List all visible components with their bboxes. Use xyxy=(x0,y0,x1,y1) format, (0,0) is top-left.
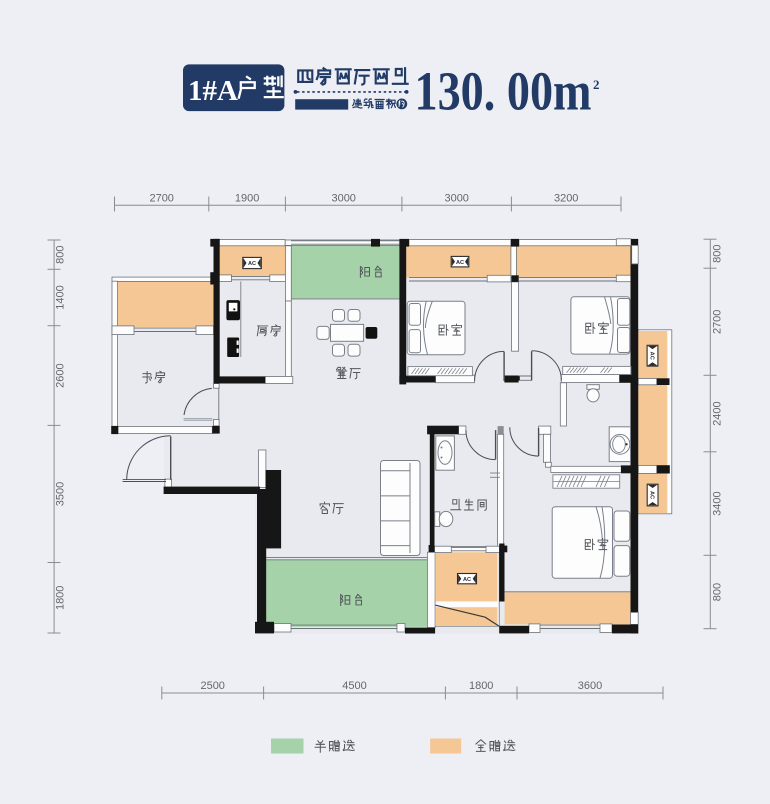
svg-text:1#A: 1#A xyxy=(188,75,238,107)
svg-text:AC: AC xyxy=(648,491,654,499)
svg-text:1900: 1900 xyxy=(235,193,259,205)
svg-text:1800: 1800 xyxy=(469,680,493,692)
svg-text:800: 800 xyxy=(712,583,724,601)
svg-text:1800: 1800 xyxy=(55,586,67,610)
svg-text:130. 00m: 130. 00m xyxy=(415,61,592,122)
svg-text:3200: 3200 xyxy=(554,193,578,205)
svg-text:AC: AC xyxy=(463,577,471,583)
svg-text:3600: 3600 xyxy=(578,680,602,692)
svg-text:4500: 4500 xyxy=(342,680,366,692)
svg-text:3500: 3500 xyxy=(55,482,67,506)
svg-text:2600: 2600 xyxy=(55,363,67,387)
svg-text:AC: AC xyxy=(648,352,654,360)
svg-text:800: 800 xyxy=(55,246,67,264)
svg-text:2: 2 xyxy=(593,77,600,92)
svg-text:2700: 2700 xyxy=(149,193,173,205)
svg-text:3000: 3000 xyxy=(444,193,468,205)
svg-text:3000: 3000 xyxy=(331,193,355,205)
svg-text:3400: 3400 xyxy=(712,491,724,515)
svg-text:800: 800 xyxy=(712,245,724,263)
svg-text:AC: AC xyxy=(456,260,464,266)
svg-text:2700: 2700 xyxy=(712,310,724,334)
svg-text:AC: AC xyxy=(248,261,256,267)
svg-text:2400: 2400 xyxy=(712,401,724,425)
svg-text:2500: 2500 xyxy=(200,680,224,692)
svg-text:1400: 1400 xyxy=(55,285,67,309)
